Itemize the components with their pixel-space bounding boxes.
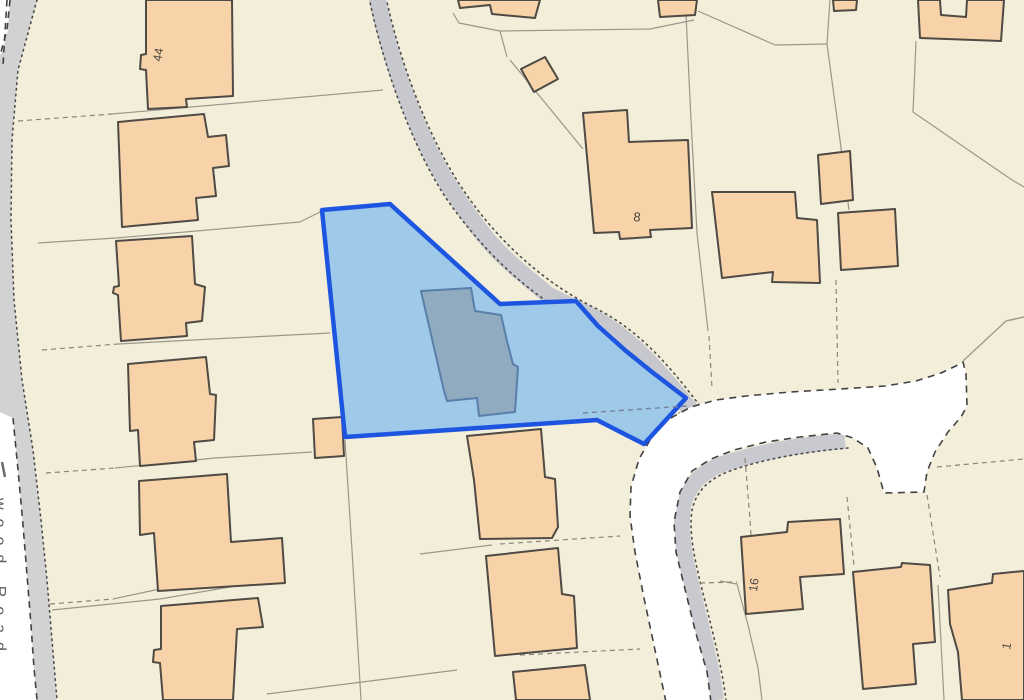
building bbox=[818, 151, 853, 204]
building bbox=[948, 571, 1024, 700]
building-outbuilding bbox=[313, 417, 344, 458]
building bbox=[838, 209, 898, 270]
building bbox=[658, 0, 697, 17]
house-number-44: 44 bbox=[150, 47, 166, 63]
building bbox=[513, 665, 590, 700]
os-map-view[interactable]: 44816wood Road1 bbox=[0, 0, 1024, 700]
building bbox=[833, 0, 857, 11]
road-name-label: wood Road bbox=[0, 497, 8, 660]
map-canvas[interactable]: 44816wood Road1 bbox=[0, 0, 1024, 700]
house-number-16: 16 bbox=[746, 577, 762, 592]
